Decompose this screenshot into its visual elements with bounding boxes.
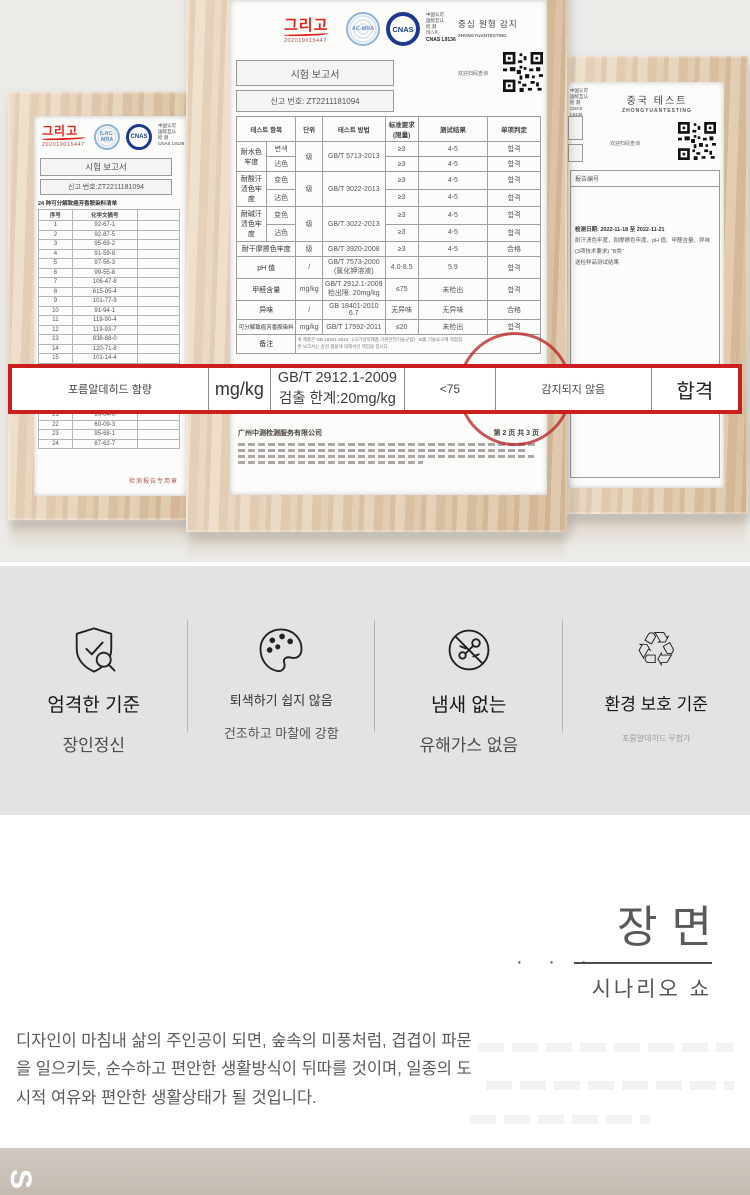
cas-number: 101-77-9 <box>72 297 137 307</box>
feature-subtitle: 건조하고 마찰에 강함 <box>188 723 376 742</box>
cas-number: 95-69-2 <box>72 240 137 250</box>
empty-cell <box>137 249 179 259</box>
column-header: 化学文摘号 <box>72 210 137 221</box>
fine-print-line <box>238 449 528 452</box>
right-certificate-paper: 中国认可 国际互认 检 测 CNAS L9136 중국 테스트 ZHONGYUA… <box>568 82 724 488</box>
row-number: 8 <box>39 287 73 297</box>
amine-list-note: 24 种可分解致癌芳香胺染料清单 <box>38 199 117 207</box>
feature-subtitle: 장인정신 <box>0 731 188 756</box>
fine-print-line <box>238 461 423 464</box>
report-title: 시험 보고서 <box>291 66 340 81</box>
cnas-stamp-icon: CNAS <box>386 12 420 46</box>
highlight-method: GB/T 2912.1-2009 검출 한계:20mg/kg <box>270 368 404 410</box>
ghost-text-line <box>486 1081 734 1090</box>
report-line: (3项技术要求) “B类” <box>575 249 715 256</box>
left-certificate-frame: 그리고 202019015447 ILAC-MRA CNAS 中国认可 国际互认… <box>8 92 190 520</box>
column-header: 测试结果 <box>418 117 487 142</box>
left-certificate-paper: 그리고 202019015447 ILAC-MRA CNAS 中国认可 国际互认… <box>34 116 188 496</box>
accreditation-side-block: 中国认可 国际互认 检 测 테스트 CNAS L9136 <box>426 12 456 43</box>
stamp-label: CNAS <box>392 25 413 34</box>
table-row: 15 101-14-4 <box>39 354 180 364</box>
cas-number: 838-88-0 <box>72 335 137 345</box>
ilac-mra-stamp-icon: ILAC-MRA <box>94 124 120 150</box>
table-row: 9 101-77-9 <box>39 297 180 307</box>
cas-number: 106-47-8 <box>72 278 137 288</box>
title-divider-line <box>574 962 712 964</box>
report-lines: 检测日期: 2022-11-18 至 2022-11-21 耐汗渍色牢度、耐摩擦… <box>571 227 719 268</box>
column-header: 序号 <box>39 210 73 221</box>
qr-caption: 欢迎扫码查询 <box>610 140 640 147</box>
ghost-text-line <box>478 1043 733 1052</box>
report-line: 耐汗渍色牢度、耐摩擦色牢度、pH 值、甲醛含量、异味 <box>575 238 715 245</box>
row-number: 14 <box>39 344 73 354</box>
empty-cell <box>137 259 179 269</box>
feature-title: 엄격한 기준 <box>0 690 188 717</box>
lab-subtitle: ZHONGYUANTESTING <box>458 33 546 38</box>
feature-strict-standards: 엄격한 기준 장인정신 <box>0 618 188 815</box>
stamp-label: AC-MRA <box>352 26 374 32</box>
table-row: 可分解致癌芳香胺染料 mg/kg GB/T 17592-2011 ≤20 未检出… <box>237 320 541 335</box>
table-row: 耐水色牢度 변색 级 GB/T 5713-2013 ≥3 4-5 합격 <box>237 142 541 157</box>
row-number: 6 <box>39 268 73 278</box>
report-number-box: 신고 번호: ZT2211181094 <box>236 90 394 112</box>
column-header: 단위 <box>296 117 322 142</box>
column-header <box>137 210 179 221</box>
table-row: 2 92-87-5 <box>39 230 180 240</box>
table-row: 14 120-71-8 <box>39 344 180 354</box>
row-number: 4 <box>39 249 73 259</box>
empty-cell <box>137 325 179 335</box>
empty-cell <box>137 306 179 316</box>
table-row: 12 119-93-7 <box>39 325 180 335</box>
row-number: 15 <box>39 354 73 364</box>
table-row: 10 91-94-1 <box>39 306 180 316</box>
table-row: 3 95-69-2 <box>39 240 180 250</box>
empty-cell <box>137 240 179 250</box>
cas-number: 101-14-4 <box>72 354 137 364</box>
cas-number: 91-94-1 <box>72 306 137 316</box>
empty-cell <box>137 354 179 364</box>
report-title: 시험 보고서 <box>85 161 126 173</box>
table-row: 5 97-56-3 <box>39 259 180 269</box>
report-number-label: 报告编号 <box>571 171 719 187</box>
column-header: 标准要求 (限量) <box>385 117 418 142</box>
column-header: 테스트 방법 <box>322 117 385 142</box>
row-number: 2 <box>39 230 73 240</box>
scene-description: 디자인이 마침내 삶의 주인공이 되면, 숲속의 미풍처럼, 겹겹이 파문을 일… <box>16 1027 478 1112</box>
frame-reflection <box>10 522 188 550</box>
accreditation-side-text: 中国认可 国际互认 检 测 테스트 <box>426 12 456 36</box>
stamp-label: ILAC-MRA <box>96 131 118 143</box>
table-row: 24 87-62-7 <box>39 439 180 449</box>
table-row: 耐碱汗渍色牢度 变色 级 GB/T 3022-2013 ≥3 4-5 합격 <box>237 207 541 225</box>
report-number: 신고 번호:ZT2211181094 <box>68 182 144 192</box>
scene-section: 장면 · · · 시나리오 쇼 디자인이 마침내 삶의 주인공이 되면, 숲속의… <box>0 815 750 1148</box>
highlight-result: 감지되지 않음 <box>495 368 651 410</box>
row-number: 11 <box>39 316 73 326</box>
footer-fine-print <box>238 443 537 467</box>
table-row: 6 99-55-8 <box>39 268 180 278</box>
cas-number: 97-56-3 <box>72 259 137 269</box>
empty-cell <box>137 221 179 231</box>
report-body-box: 报告编号 检测日期: 2022-11-18 至 2022-11-21 耐汗渍色牢… <box>570 170 720 478</box>
table-row: 22 60-09-3 <box>39 420 180 430</box>
column-header: 테스트 항목 <box>237 117 296 142</box>
feature-subtitle: 포름알데히드 무첨가 <box>563 733 750 744</box>
right-certificate-frame: 中国认可 国际互认 检 测 CNAS L9136 중국 테스트 ZHONGYUA… <box>564 56 748 514</box>
cas-number: 92-87-5 <box>72 230 137 240</box>
feature-title: 냄새 없는 <box>375 690 563 717</box>
highlight-standard: <75 <box>404 368 495 410</box>
features-band: 엄격한 기준 장인정신 퇴색하기 쉽지 않음 건조하고 마찰에 강함 냄새 없는 <box>0 566 750 815</box>
highlight-item: 포름알데히드 함량 <box>12 368 208 410</box>
empty-cell <box>137 268 179 278</box>
table-row: 8 615-05-4 <box>39 287 180 297</box>
empty-cell <box>137 316 179 326</box>
table-row: 沾色 ≥3 4-5 합격 <box>237 224 541 242</box>
brand-logo: 그리고 202019015447 <box>284 14 328 44</box>
center-certificate-frame: 그리고 202019015447 AC-MRA CNAS 中国认可 国际互认 检… <box>186 0 567 532</box>
report-line: 检测日期: 2022-11-18 至 2022-11-21 <box>575 227 715 234</box>
ghost-text-line <box>470 1115 650 1124</box>
report-subtitle: ZHONGYUANTESTING <box>602 108 712 114</box>
accreditation-side-text: 中国认可 国际互认 检 测 CNAS L9136 <box>158 123 184 147</box>
report-line: 送检样品测试结果 <box>575 260 715 267</box>
table-row: 11 119-90-4 <box>39 316 180 326</box>
ac-mra-stamp-icon: AC-MRA <box>346 12 380 46</box>
frame-reflection <box>188 534 565 560</box>
row-number: 13 <box>39 335 73 345</box>
brand-logo-underline <box>284 32 328 37</box>
report-stamp-text: 检测报告专用章 <box>129 476 178 485</box>
table-row: 耐干摩擦色牢度 级 GB/T 3920-2008 ≥3 4-5 合格 <box>237 242 541 257</box>
highlight-unit: mg/kg <box>208 368 270 410</box>
empty-cell <box>137 420 179 430</box>
empty-cell <box>137 278 179 288</box>
test-result-table: 테스트 항목 단위 테스트 방법 标准要求 (限量) 测试结果 单项判定 耐水色… <box>236 116 541 354</box>
report-title-box: 시험 보고서 <box>40 158 172 176</box>
cutoff-title-box <box>568 116 583 140</box>
section-subtitle: 시나리오 쇼 <box>592 973 712 1003</box>
cnas-stamp-icon: CNAS <box>126 124 152 150</box>
brand-logo-number: 202019015447 <box>284 38 328 44</box>
feature-no-odor: 냄새 없는 유해가스 없음 <box>375 618 563 815</box>
lab-company-name: 广州中测检测服务有限公司 <box>238 428 322 438</box>
stamp-label: CNAS <box>130 134 147 140</box>
table-row: 异味 / GB 18401-2010 6.7 无异味 无异味 合格 <box>237 301 541 320</box>
feature-title: 환경 보호 기준 <box>563 690 750 715</box>
table-row: 耐酸汗渍色牢度 变色 级 GB/T 3022-2013 ≥3 4-5 합격 <box>237 172 541 190</box>
empty-cell <box>137 335 179 345</box>
row-number: 7 <box>39 278 73 288</box>
brand-logo: 그리고 202019015447 <box>42 122 85 148</box>
brand-logo-underline <box>42 136 85 140</box>
cas-number: 95-68-1 <box>72 430 137 440</box>
cas-number: 119-90-4 <box>72 316 137 326</box>
certificates-section: 그리고 202019015447 ILAC-MRA CNAS 中国认可 国际互认… <box>0 0 750 562</box>
table-header-row: 테스트 항목 단위 테스트 방법 标准要求 (限量) 测试结果 单项判定 <box>237 117 541 142</box>
cas-number: 60-09-3 <box>72 420 137 430</box>
section-title: 장면 <box>617 891 726 955</box>
report-title: 중국 테스트 <box>602 92 712 107</box>
feature-subtitle: 유해가스 없음 <box>375 731 563 756</box>
brand-logo-number: 202019015447 <box>42 142 85 148</box>
qr-code-icon <box>678 122 716 160</box>
fine-print-line <box>238 455 534 458</box>
table-row: 7 106-47-8 <box>39 278 180 288</box>
lab-title-block: 중심 원형 감지 ZHONGYUANTESTING <box>458 18 546 38</box>
accreditation-code: CNAS L9136 <box>426 37 456 43</box>
table-row: 1 92-67-1 <box>39 221 180 231</box>
row-number: 1 <box>39 221 73 231</box>
cutoff-number-box <box>568 144 583 162</box>
row-number: 23 <box>39 430 73 440</box>
band-letter: S <box>3 1169 37 1189</box>
table-row: 甲醛含量 mg/kg GB/T 2912.1-2009 检出限: 20mg/kg… <box>237 279 541 301</box>
highlight-result-row: 포름알데히드 함량 mg/kg GB/T 2912.1-2009 검출 한계:2… <box>8 364 742 414</box>
table-row: 23 95-68-1 <box>39 430 180 440</box>
table-row: pH 值 / GB/T 7573-2000 (氯化钾溶液) 4.0-8.5 5.… <box>237 257 541 279</box>
cas-number: 99-55-8 <box>72 268 137 278</box>
empty-cell <box>137 430 179 440</box>
feature-title: 퇴색하기 쉽지 않음 <box>188 690 376 709</box>
cas-number: 87-62-7 <box>72 439 137 449</box>
accreditation-side-text: 中国认可 国际互认 检 测 CNAS L9136 <box>570 88 594 118</box>
table-row: 沾色 ≥3 4-5 합격 <box>237 189 541 207</box>
empty-cell <box>137 344 179 354</box>
table-row: 4 91-59-8 <box>39 249 180 259</box>
table-row: 13 838-88-0 <box>39 335 180 345</box>
row-number: 3 <box>39 240 73 250</box>
table-header-row: 序号 化学文摘号 <box>39 210 180 221</box>
cas-number: 615-05-4 <box>72 287 137 297</box>
empty-cell <box>137 297 179 307</box>
frame-reflection <box>566 516 746 546</box>
row-number: 12 <box>39 325 73 335</box>
recycle-glyph: ♲ <box>635 621 678 679</box>
row-number: 5 <box>39 259 73 269</box>
qr-caption: 欢迎扫码查询 <box>458 70 488 77</box>
empty-cell <box>137 287 179 297</box>
report-title-box: 시험 보고서 <box>236 60 394 86</box>
highlight-judgement: 합격 <box>651 368 738 410</box>
cas-number: 91-59-8 <box>72 249 137 259</box>
no-odor-icon <box>375 618 563 682</box>
report-number: 신고 번호: ZT2211181094 <box>270 96 359 107</box>
table-row: 沾色 ≥3 4-5 합격 <box>237 157 541 172</box>
feature-eco-standard: ♲ 환경 보호 기준 포름알데히드 무첨가 <box>563 618 750 815</box>
cas-number: 120-71-8 <box>72 344 137 354</box>
bottom-band: S <box>0 1148 750 1195</box>
fine-print-line <box>238 443 537 446</box>
cas-number: 119-93-7 <box>72 325 137 335</box>
row-number: 9 <box>39 297 73 307</box>
feature-fade-resistant: 퇴색하기 쉽지 않음 건조하고 마찰에 강함 <box>188 618 376 815</box>
row-number: 24 <box>39 439 73 449</box>
empty-cell <box>137 439 179 449</box>
lab-title: 중심 원형 감지 <box>458 18 546 30</box>
empty-cell <box>137 230 179 240</box>
shield-check-magnifier-icon <box>0 618 188 682</box>
qr-code-icon <box>503 52 543 92</box>
report-number-box: 신고 번호:ZT2211181094 <box>40 179 172 195</box>
cas-number: 92-67-1 <box>72 221 137 231</box>
column-header: 单项判定 <box>488 117 541 142</box>
row-number: 22 <box>39 420 73 430</box>
palette-icon <box>188 618 376 682</box>
row-number: 10 <box>39 306 73 316</box>
recycle-icon: ♲ <box>563 618 750 682</box>
